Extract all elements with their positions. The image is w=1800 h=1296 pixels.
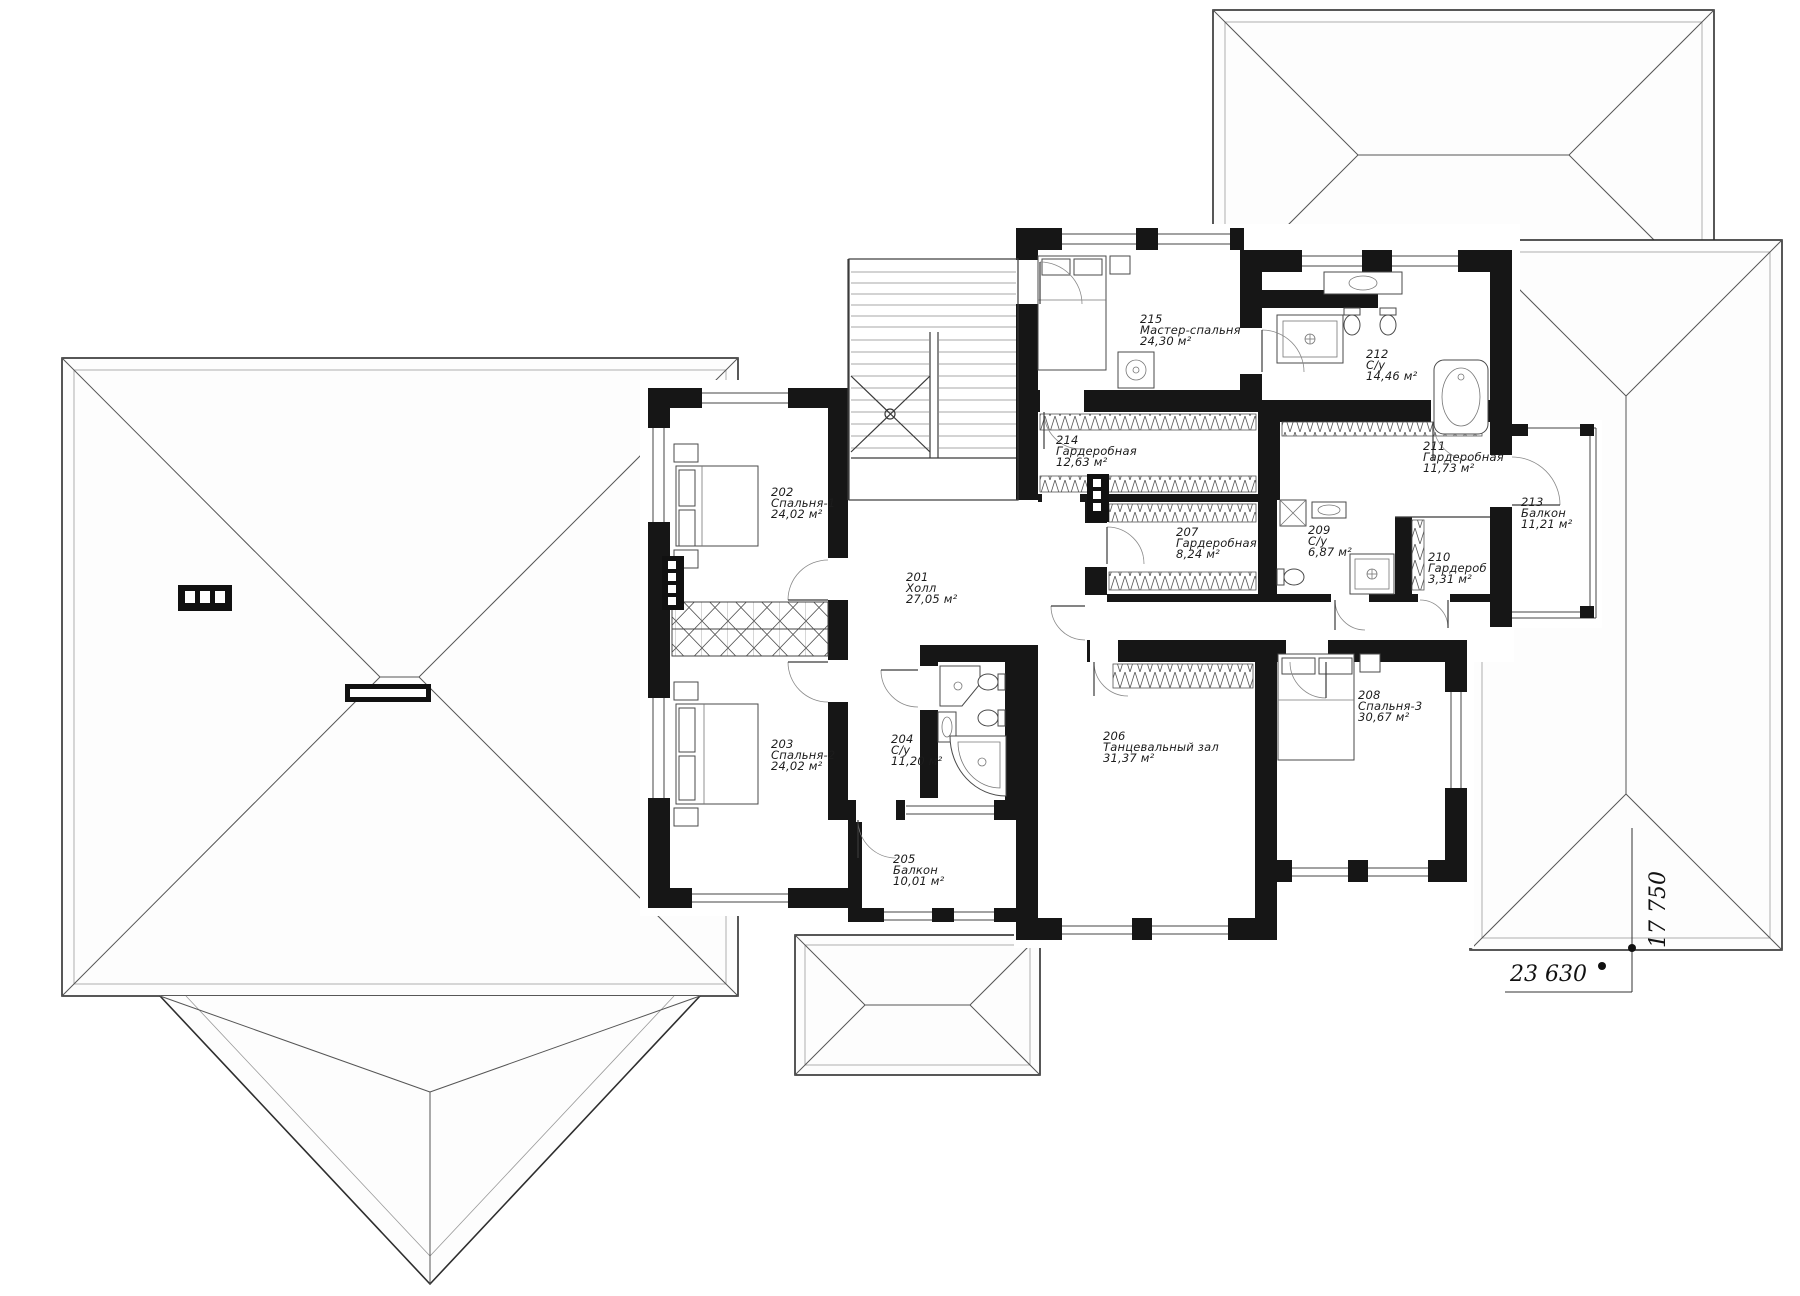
room-area: 24,30 м²: [1140, 336, 1241, 347]
sink-209: [1312, 502, 1346, 518]
dimension-dot: [1598, 962, 1606, 970]
window: [1392, 248, 1458, 274]
shower-212: [1277, 315, 1343, 363]
roof-bottom-center: [795, 935, 1040, 1075]
window: [1368, 858, 1428, 884]
room-label-205: 205 Балкон 10,01 м²: [893, 854, 944, 887]
room-area: 27,05 м²: [906, 594, 957, 605]
ventilation-shaft-icon: [662, 556, 684, 610]
ventilation-shaft-icon: [1087, 474, 1109, 522]
room-label-215: 215 Мастер-спальня 24,30 м²: [1140, 314, 1241, 347]
room-area: 8,24 м²: [1176, 549, 1257, 560]
room-label-213: 213 Балкон 11,21 м²: [1521, 497, 1572, 530]
roof-left: [62, 358, 738, 1284]
dimension-width-label: 23 630: [1510, 962, 1587, 987]
room-area: 12,63 м²: [1056, 457, 1137, 468]
window: [702, 386, 788, 410]
room-area: 30,67 м²: [1358, 712, 1422, 723]
bathtub-212: [1434, 360, 1488, 434]
room-label-207: 207 Гардеробная 8,24 м²: [1176, 527, 1257, 560]
window: [1062, 916, 1132, 942]
window: [1292, 858, 1348, 884]
closet-between-bedrooms: [672, 602, 828, 656]
window: [1158, 226, 1230, 252]
room-label-203: 203 Спальня-2 24,02 м²: [771, 739, 835, 772]
room-area: 10,01 м²: [893, 876, 944, 887]
room-label-210: 210 Гардероб 3,31 м²: [1428, 552, 1487, 585]
toilet-209: [1277, 569, 1304, 585]
room-area: 6,87 м²: [1308, 547, 1352, 558]
room-label-202: 202 Спальня-1 24,02 м²: [771, 487, 835, 520]
room-label-208: 208 Спальня-3 30,67 м²: [1358, 690, 1422, 723]
room-area: 11,20 м²: [891, 756, 942, 767]
shower-209: [1350, 554, 1394, 594]
dimension-dot: [1628, 944, 1636, 952]
window: [1302, 248, 1362, 274]
room-area: 14,46 м²: [1366, 371, 1417, 382]
room-area: 24,02 м²: [771, 761, 835, 772]
window: [692, 886, 788, 910]
room-label-201: 201 Холл 27,05 м²: [906, 572, 957, 605]
washer-209: [1280, 500, 1306, 526]
floor-plan-page: 201 Холл 27,05 м² 202 Спальня-1 24,02 м²…: [0, 0, 1800, 1296]
toilet-204: [978, 674, 1005, 690]
floor-plan-drawing: [0, 0, 1800, 1296]
window: [1062, 226, 1136, 252]
room-area: 24,02 м²: [771, 509, 835, 520]
chimney-icon: [178, 585, 232, 611]
vanity-sink-212: [1324, 272, 1402, 294]
window: [906, 798, 994, 822]
room-label-206: 206 Танцевальный зал 31,37 м²: [1103, 731, 1219, 764]
window: [646, 428, 672, 522]
toilet-212: [1344, 308, 1360, 335]
bed-203: [674, 682, 758, 826]
window: [1443, 692, 1469, 788]
dimension-depth-label: 17 750: [1646, 871, 1671, 948]
window: [646, 698, 672, 798]
room-area: 11,21 м²: [1521, 519, 1572, 530]
window: [1152, 916, 1228, 942]
bidet-204: [978, 710, 1005, 726]
dresser-215: [1118, 352, 1154, 388]
room-label-214: 214 Гардеробная 12,63 м²: [1056, 435, 1137, 468]
room-label-212: 212 С/у 14,46 м²: [1366, 349, 1417, 382]
room-label-209: 209 С/у 6,87 м²: [1308, 525, 1352, 558]
roof-vent-icon: [345, 684, 431, 702]
bidet-212: [1380, 308, 1396, 335]
room-area: 31,37 м²: [1103, 753, 1219, 764]
room-label-204: 204 С/у 11,20 м²: [891, 734, 942, 767]
room-area: 11,73 м²: [1423, 463, 1504, 474]
room-area: 3,31 м²: [1428, 574, 1487, 585]
room-label-211: 211 Гардеробная 11,73 м²: [1423, 441, 1504, 474]
